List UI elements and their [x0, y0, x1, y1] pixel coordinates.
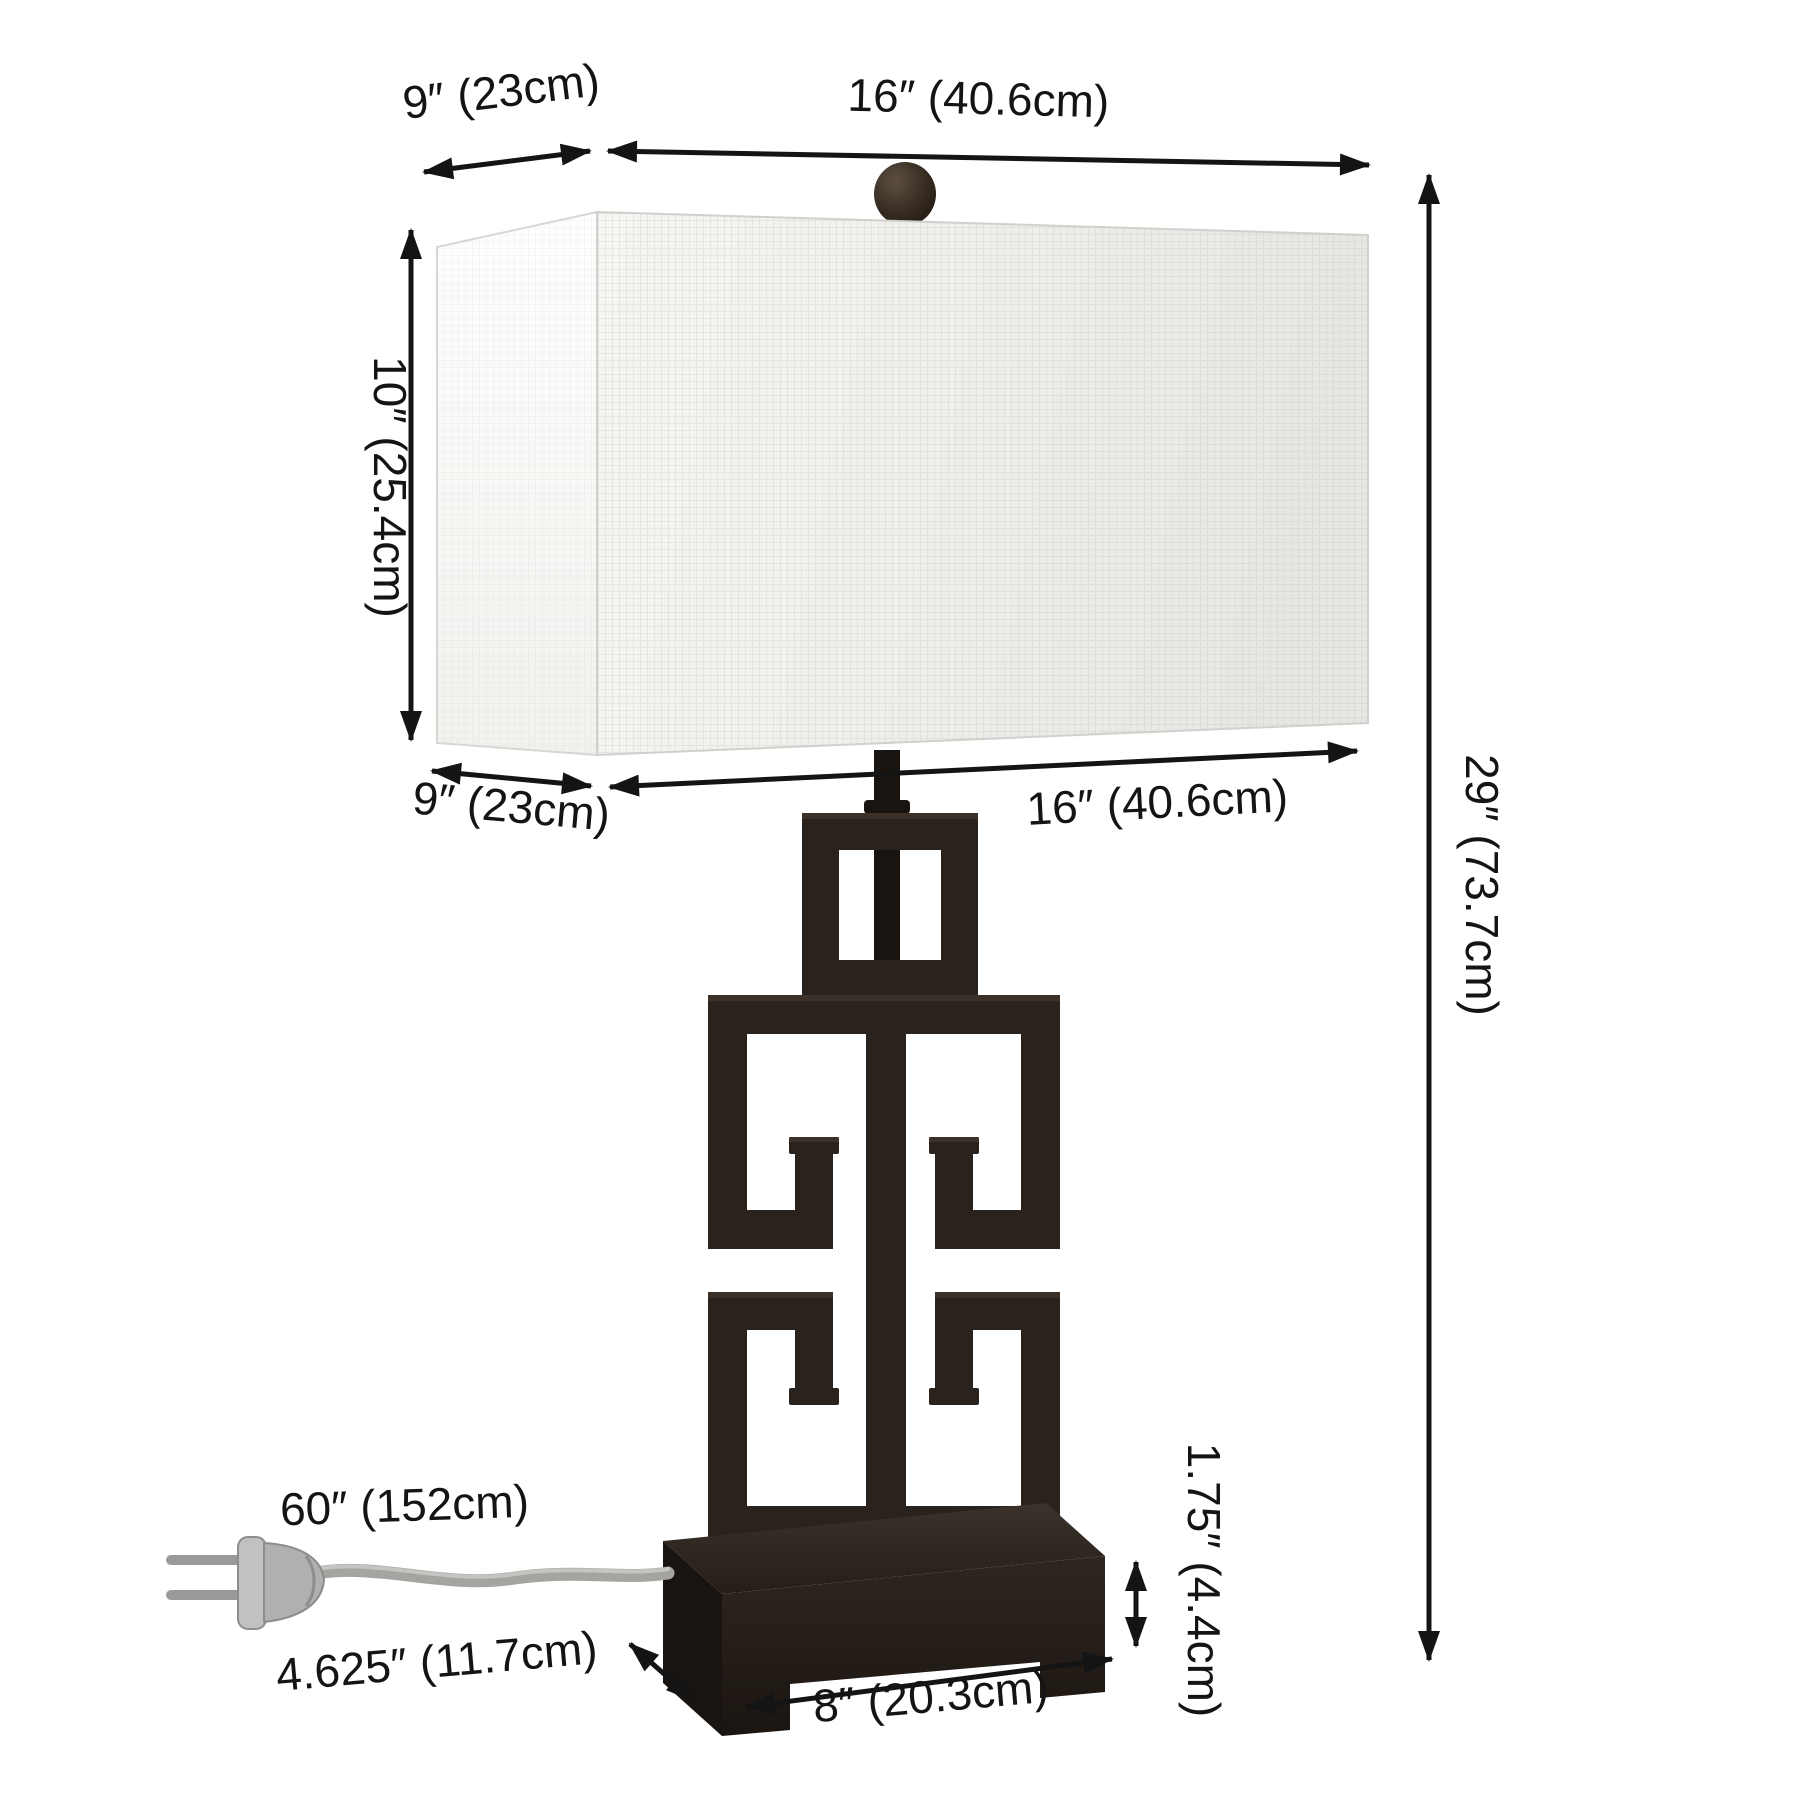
- dim-label-base-height: 1.75″ (4.4cm): [1178, 1443, 1230, 1718]
- plug-prong-bottom: [166, 1590, 244, 1600]
- dim-arrow-top-depth: [424, 151, 590, 172]
- power-plug: [166, 1537, 324, 1629]
- shade-side-texture: [437, 212, 597, 755]
- dim-arrow-top-width: [608, 151, 1369, 165]
- dim-label-top-width: 16″ (40.6cm): [847, 69, 1110, 128]
- dim-label-overall-height: 29″ (73.7cm): [1456, 754, 1508, 1016]
- plug-face-plate: [238, 1537, 266, 1629]
- dim-label-cord-length: 60″ (152cm): [279, 1475, 530, 1536]
- shade-front-texture: [597, 212, 1368, 755]
- greek-key-upper-motif: [708, 995, 1060, 1547]
- stem-collar: [864, 800, 910, 814]
- dim-label-base-depth: 4.625″ (11.7cm): [274, 1621, 600, 1701]
- finial-ball: [874, 162, 936, 226]
- diagram-canvas: 9″ (23cm) 16″ (40.6cm) 10″ (25.4cm) 9″ (…: [0, 0, 1800, 1800]
- dim-label-bottom-depth: 9″ (23cm): [411, 772, 613, 841]
- dim-label-top-depth: 9″ (23cm): [400, 53, 603, 129]
- dim-label-bottom-width: 16″ (40.6cm): [1025, 769, 1289, 835]
- lamp-dimension-diagram: 9″ (23cm) 16″ (40.6cm) 10″ (25.4cm) 9″ (…: [0, 0, 1800, 1800]
- dim-label-shade-height: 10″ (25.4cm): [364, 356, 416, 618]
- plug-prong-top: [166, 1555, 244, 1565]
